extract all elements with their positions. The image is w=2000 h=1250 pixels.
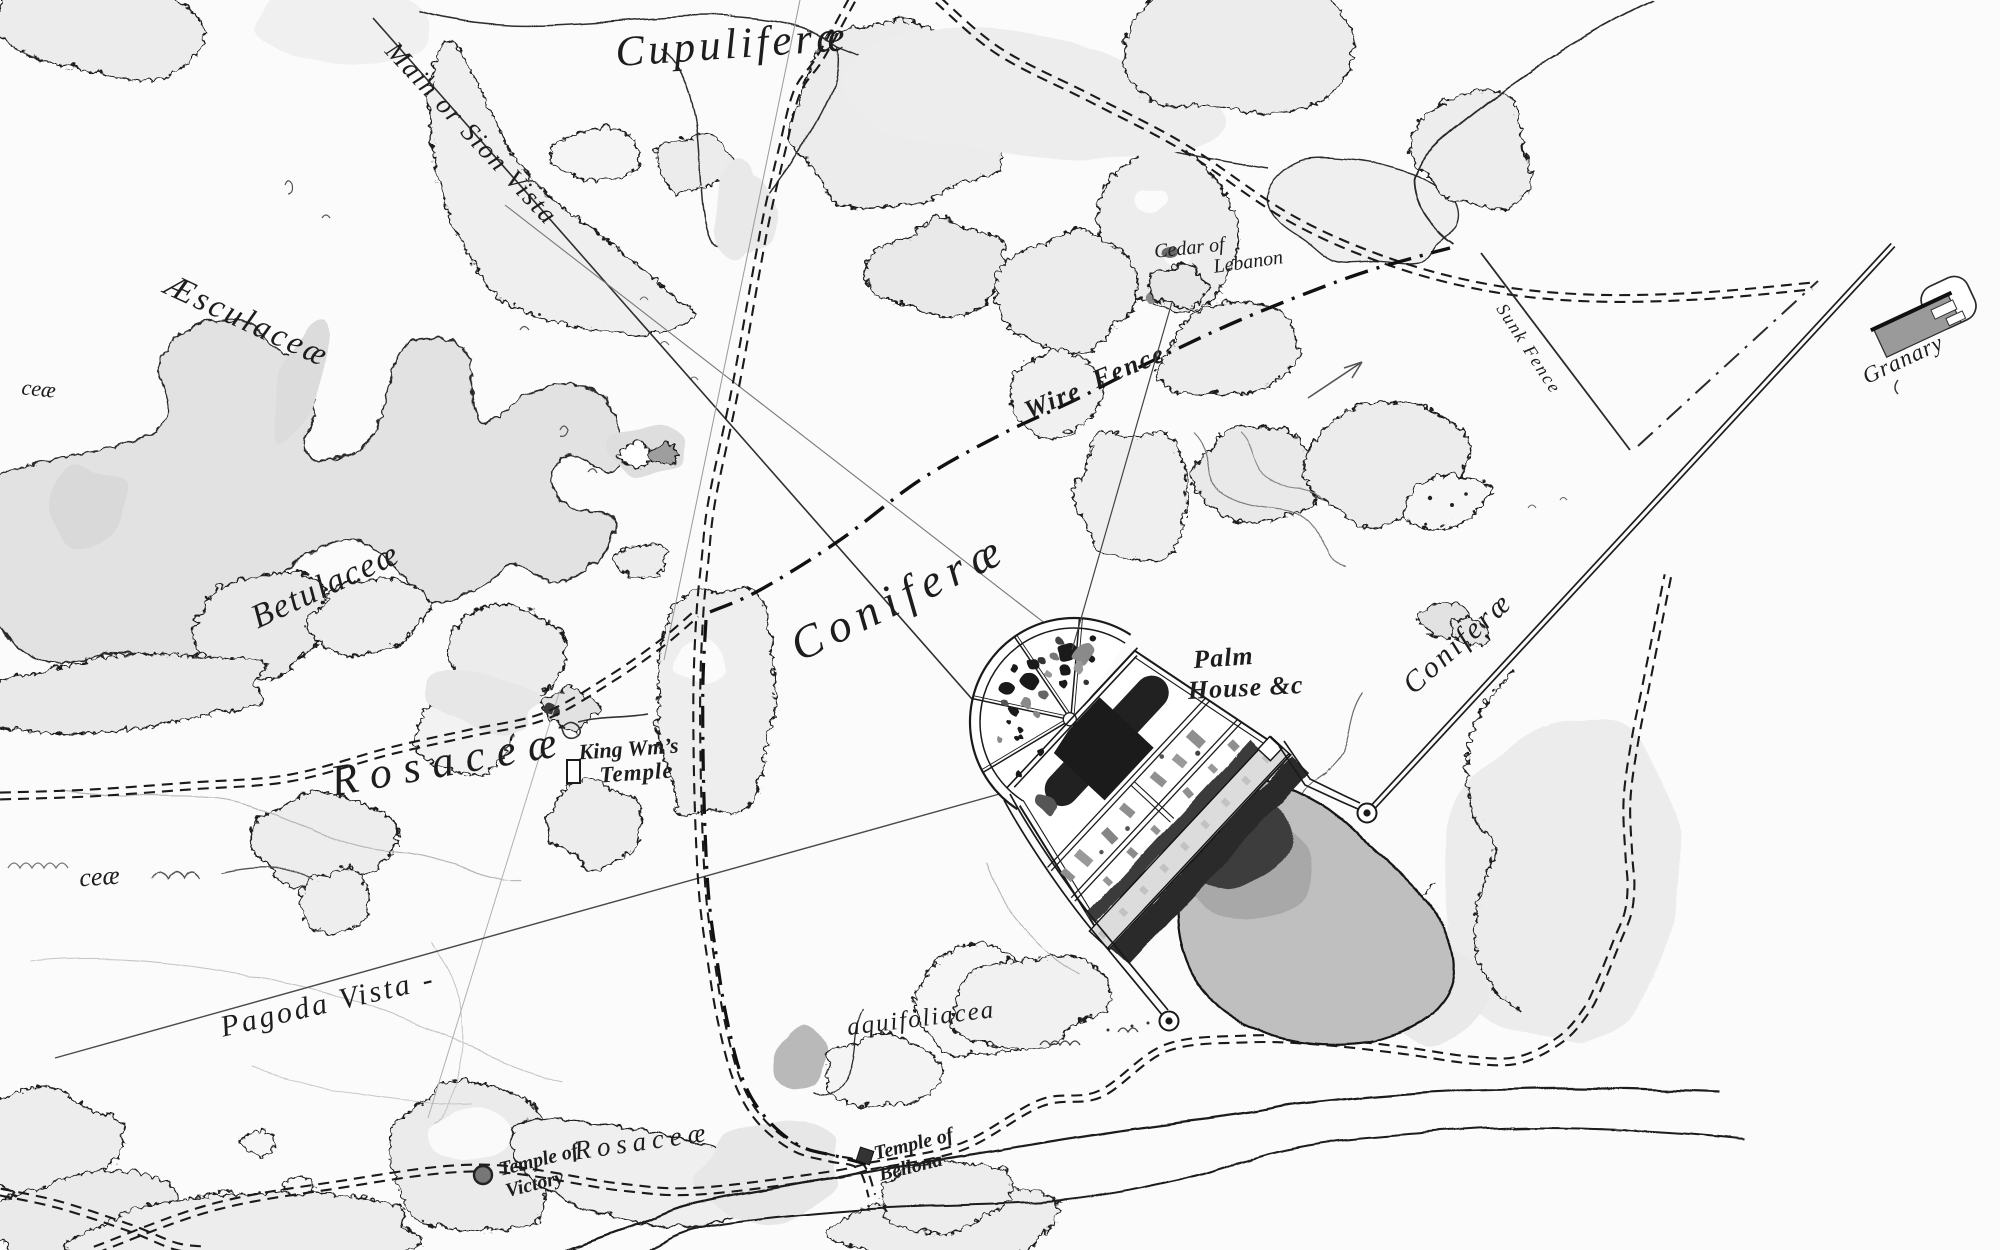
svg-text:Palm: Palm [1191, 641, 1254, 674]
svg-text:Temple: Temple [599, 757, 675, 787]
svg-text:ceæ: ceæ [20, 374, 57, 402]
svg-text:House &c: House &c [1186, 670, 1304, 705]
svg-text:ceæ: ceæ [78, 861, 120, 893]
